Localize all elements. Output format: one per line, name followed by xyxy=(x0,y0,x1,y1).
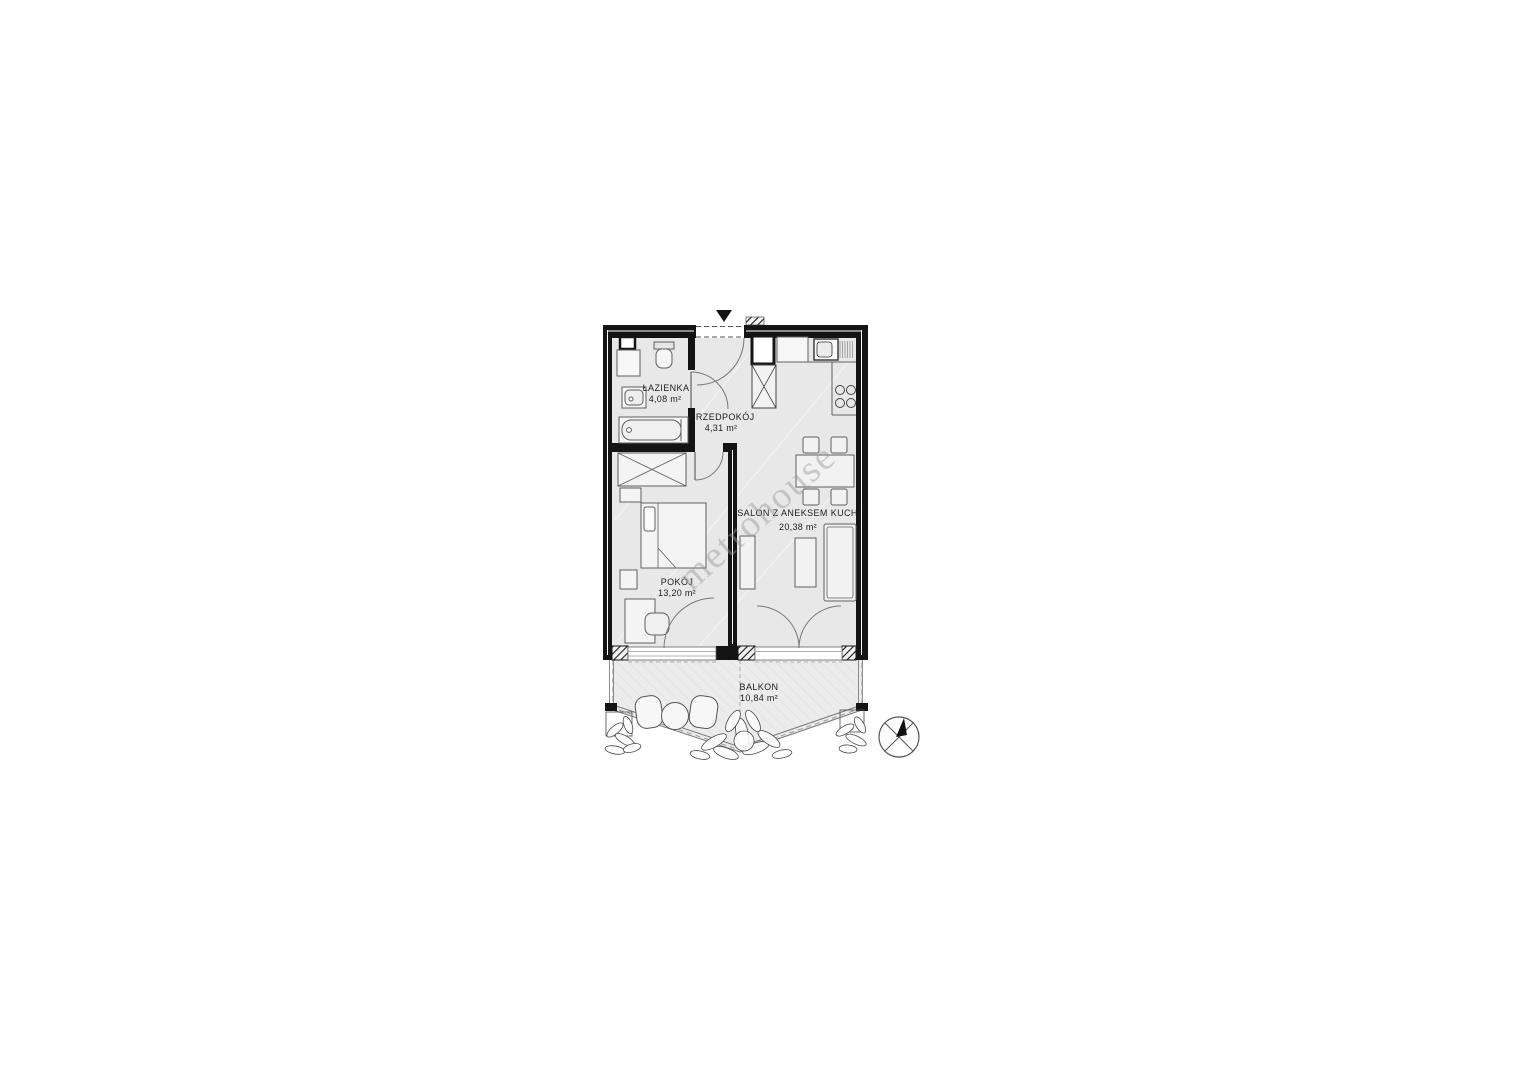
room-area-hall: 4,31 m² xyxy=(705,423,738,433)
toilet-cistern xyxy=(654,342,674,349)
room-label-bathroom: ŁAZIENKA xyxy=(643,383,690,393)
floor-plan-page: ŁAZIENKA 4,08 m² PRZEDPOKÓJ 4,31 m² POKÓ… xyxy=(0,0,1528,1080)
washing-machine xyxy=(617,350,640,376)
room-label-balcony: BALKON xyxy=(740,682,779,692)
balcony-chair xyxy=(688,694,719,729)
desk-chair xyxy=(645,613,669,635)
balcony-table xyxy=(662,703,689,730)
room-area-living: 20,38 m² xyxy=(779,522,817,532)
nightstand xyxy=(620,570,637,589)
kitchen-cabinet xyxy=(777,337,808,362)
pillow xyxy=(644,507,655,531)
dining-chair xyxy=(803,489,819,505)
dining-chair xyxy=(803,437,819,453)
coffee-table xyxy=(795,538,816,587)
dining-table xyxy=(796,455,854,487)
entrance-arrow-icon xyxy=(716,310,732,322)
dining-chair xyxy=(831,437,847,453)
room-area-bathroom: 4,08 m² xyxy=(649,394,682,404)
sofa xyxy=(824,524,856,601)
toilet-bowl xyxy=(656,349,672,368)
compass-rose-icon xyxy=(879,717,919,757)
dining-chair xyxy=(831,489,847,505)
planter-left xyxy=(604,712,641,756)
tv-cabinet xyxy=(740,536,755,589)
room-label-living: SALON Z ANEKSEM KUCH. xyxy=(737,508,860,518)
room-label-bedroom: POKÓJ xyxy=(661,577,694,587)
floor-plan-drawing xyxy=(596,300,940,780)
room-label-hall: PRZEDPOKÓJ xyxy=(689,412,754,422)
room-area-balcony: 10,84 m² xyxy=(740,693,778,703)
room-area-bedroom: 13,20 m² xyxy=(658,588,696,598)
utility-shaft xyxy=(752,336,776,408)
nightstand xyxy=(620,488,641,502)
balcony-chair xyxy=(634,694,664,729)
